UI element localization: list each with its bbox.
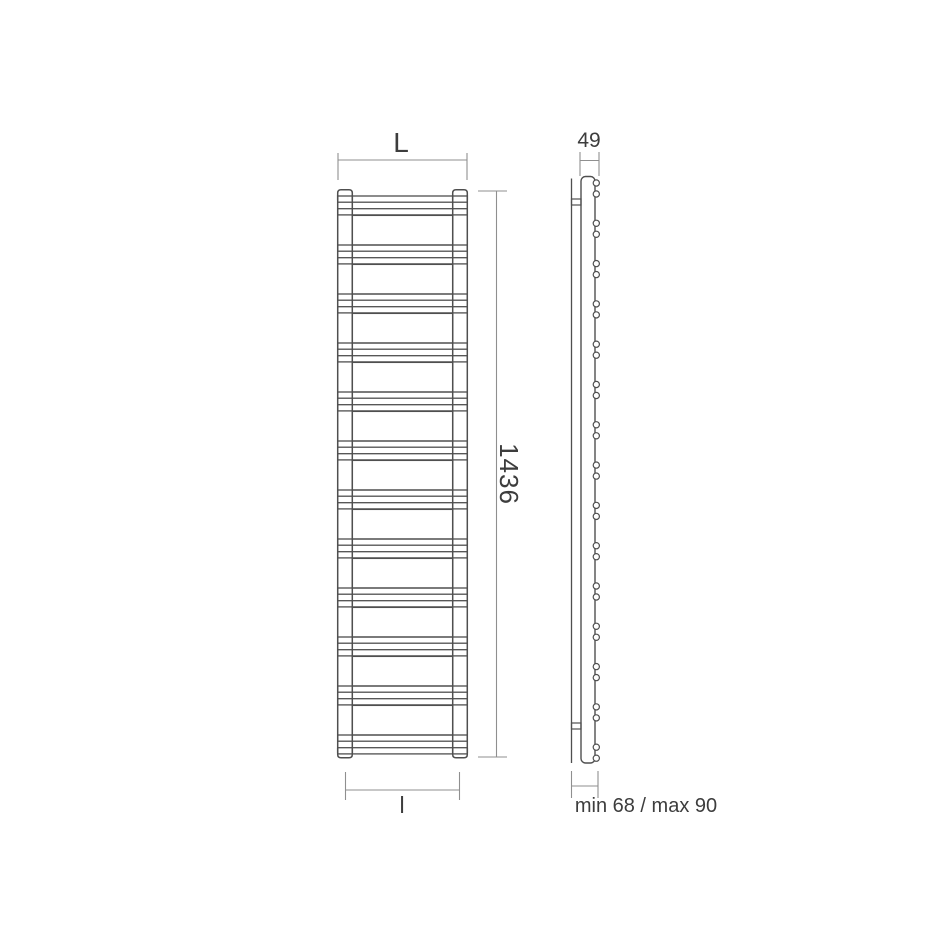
crossbar-tube xyxy=(338,686,468,692)
tube-end-circle xyxy=(593,422,599,428)
tube-end-circle xyxy=(593,634,599,640)
tube-end-circle xyxy=(593,513,599,519)
dim-label-width-top: L xyxy=(393,127,409,158)
crossbar-tube xyxy=(338,294,468,300)
crossbar-tube xyxy=(338,601,468,607)
crossbar-tube xyxy=(338,209,468,215)
tube-end-circle xyxy=(593,381,599,387)
radiator-technical-drawing: L 1436 49 l min 68 / max 90 xyxy=(0,0,950,950)
front-end-caps xyxy=(338,190,468,758)
crossbar-tube xyxy=(338,405,468,411)
dim-label-wall-distance: min 68 / max 90 xyxy=(575,795,717,817)
crossbar-tube xyxy=(338,307,468,313)
top-end-cap xyxy=(338,190,353,200)
bottom-end-cap xyxy=(338,748,353,758)
tube-end-circle xyxy=(593,392,599,398)
crossbar-tube xyxy=(338,588,468,594)
flat-panel xyxy=(352,607,452,637)
drawing-svg: L 1436 49 l min 68 / max 90 xyxy=(0,0,950,950)
tube-end-circle xyxy=(593,594,599,600)
crossbar-tube xyxy=(338,490,468,496)
crossbar-tube xyxy=(338,196,468,202)
crossbar-tube xyxy=(338,245,468,251)
crossbar-tube xyxy=(338,258,468,264)
tube-end-circle xyxy=(593,312,599,318)
flat-panel xyxy=(352,411,452,441)
tube-end-circle xyxy=(593,462,599,468)
crossbar-tube xyxy=(338,735,468,741)
tube-end-circle xyxy=(593,180,599,186)
crossbar-tube xyxy=(338,699,468,705)
dim-depth xyxy=(580,152,599,176)
wall-bracket xyxy=(572,723,582,729)
tube-end-circle xyxy=(593,744,599,750)
front-collector-rails xyxy=(338,195,468,753)
tube-end-circle xyxy=(593,755,599,761)
flat-panel xyxy=(352,460,452,490)
tube-end-circle xyxy=(593,715,599,721)
front-view xyxy=(338,190,468,758)
tube-end-circle xyxy=(593,231,599,237)
crossbar-tube xyxy=(338,454,468,460)
tube-end-circle xyxy=(593,433,599,439)
tube-end-circle xyxy=(593,301,599,307)
crossbar-tube xyxy=(338,503,468,509)
crossbar-tube xyxy=(338,343,468,349)
bottom-end-cap xyxy=(453,748,468,758)
tube-end-circle xyxy=(593,191,599,197)
top-end-cap xyxy=(453,190,468,200)
crossbar-tube xyxy=(338,392,468,398)
tube-end-circle xyxy=(593,664,599,670)
flat-panel xyxy=(352,215,452,245)
flat-panel xyxy=(352,705,452,735)
dim-label-width-bottom: l xyxy=(399,792,404,818)
side-view xyxy=(572,177,600,764)
side-wall-brackets xyxy=(572,199,582,729)
crossbar-tube xyxy=(338,748,468,754)
crossbar-tube xyxy=(338,441,468,447)
tube-end-circle xyxy=(593,543,599,549)
dimension-lines xyxy=(338,152,599,800)
front-flat-panels xyxy=(352,215,452,735)
tube-end-circle xyxy=(593,554,599,560)
tube-end-circle xyxy=(593,675,599,681)
tube-end-circle xyxy=(593,341,599,347)
tube-end-circle xyxy=(593,473,599,479)
tube-end-circle xyxy=(593,261,599,267)
dim-wall-distance xyxy=(572,771,599,798)
tube-end-circle xyxy=(593,502,599,508)
crossbar-tube xyxy=(338,650,468,656)
crossbar-tube xyxy=(338,539,468,545)
flat-panel xyxy=(352,509,452,539)
wall-bracket xyxy=(572,199,582,205)
tube-end-circle xyxy=(593,352,599,358)
front-crossbars xyxy=(338,196,468,754)
tube-end-circle xyxy=(593,272,599,278)
flat-panel xyxy=(352,264,452,294)
crossbar-tube xyxy=(338,552,468,558)
tube-end-circle xyxy=(593,220,599,226)
crossbar-tube xyxy=(338,637,468,643)
flat-panel xyxy=(352,558,452,588)
flat-panel xyxy=(352,313,452,343)
tube-end-circle xyxy=(593,583,599,589)
dim-label-height: 1436 xyxy=(494,443,524,505)
flat-panel xyxy=(352,362,452,392)
flat-panel xyxy=(352,656,452,686)
side-tube-ends xyxy=(593,180,599,761)
dim-label-depth: 49 xyxy=(577,129,600,152)
tube-end-circle xyxy=(593,704,599,710)
tube-end-circle xyxy=(593,623,599,629)
crossbar-tube xyxy=(338,356,468,362)
